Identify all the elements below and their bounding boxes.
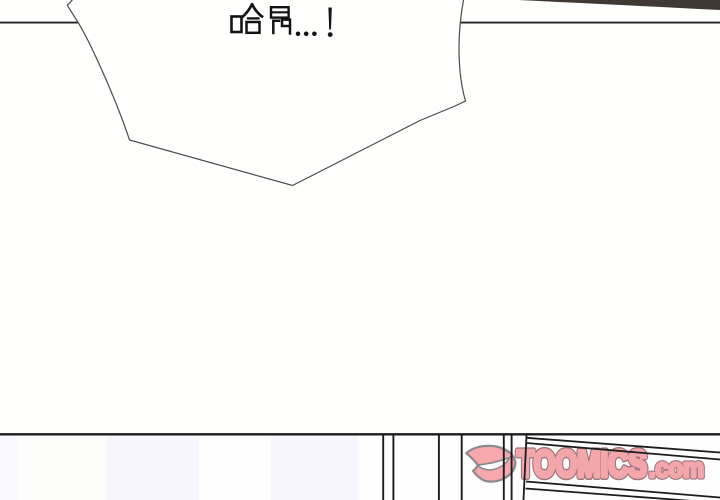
svg-text:TOOMICS: TOOMICS (517, 444, 647, 485)
svg-text:.com: .com (649, 455, 704, 483)
